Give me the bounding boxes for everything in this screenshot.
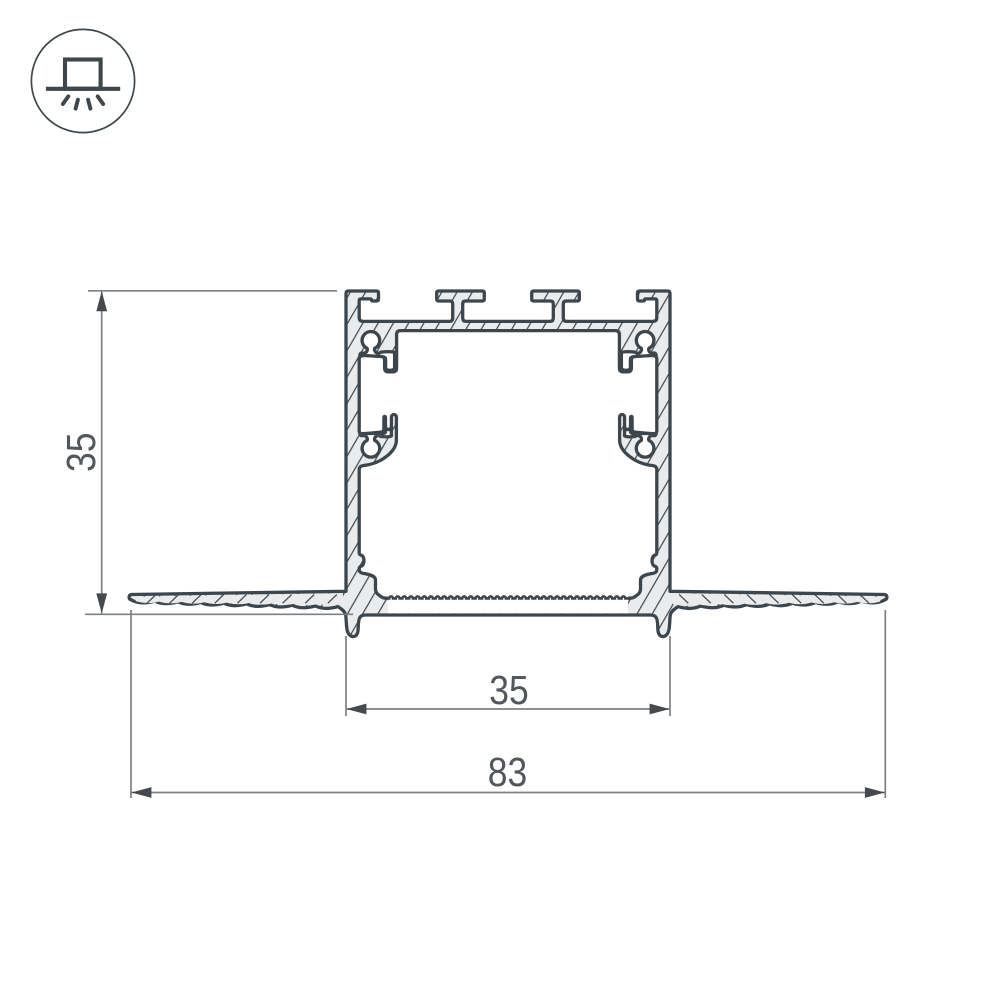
svg-text:35: 35 (489, 667, 529, 713)
svg-text:35: 35 (58, 433, 104, 473)
svg-text:83: 83 (488, 749, 528, 795)
